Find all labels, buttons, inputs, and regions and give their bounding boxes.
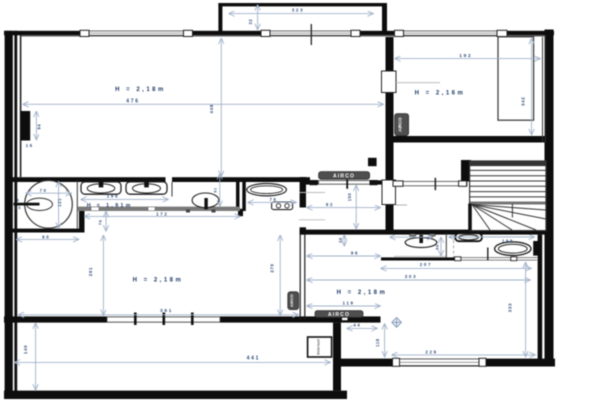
svg-text:16: 16	[26, 143, 34, 148]
svg-text:229: 229	[425, 349, 437, 354]
svg-text:H = 2,16m: H = 2,16m	[415, 91, 466, 97]
svg-text:44: 44	[353, 322, 361, 327]
svg-text:323: 323	[292, 8, 305, 13]
svg-text:56: 56	[435, 244, 440, 250]
svg-text:261: 261	[88, 267, 93, 276]
svg-text:94: 94	[37, 124, 42, 130]
svg-text:333: 333	[508, 303, 513, 312]
svg-text:70: 70	[40, 188, 48, 193]
svg-text:140: 140	[23, 345, 28, 354]
svg-text:448: 448	[209, 104, 214, 113]
svg-text:119: 119	[343, 300, 355, 305]
svg-text:270: 270	[269, 263, 274, 272]
svg-text:26: 26	[337, 237, 342, 243]
svg-text:172: 172	[156, 211, 168, 216]
svg-text:207: 207	[420, 262, 432, 267]
svg-text:91: 91	[214, 187, 218, 192]
svg-text:342: 342	[520, 97, 525, 106]
svg-text:441: 441	[247, 355, 260, 361]
svg-text:H = 2,18m: H = 2,18m	[133, 277, 184, 283]
svg-text:Meterkast: Meterkast	[317, 339, 321, 354]
svg-text:199: 199	[502, 239, 514, 244]
svg-text:121: 121	[57, 198, 62, 207]
svg-text:118: 118	[375, 338, 380, 347]
svg-text:361: 361	[160, 308, 173, 314]
svg-text:196: 196	[107, 194, 119, 199]
svg-text:76: 76	[269, 197, 277, 202]
svg-text:90: 90	[42, 234, 50, 239]
svg-text:AIRCO: AIRCO	[289, 294, 294, 307]
svg-text:192: 192	[459, 53, 472, 59]
svg-text:AIRCO: AIRCO	[328, 312, 350, 318]
svg-text:H = 2,18m: H = 2,18m	[337, 290, 388, 296]
svg-text:32: 32	[248, 19, 253, 25]
svg-text:AIRCO: AIRCO	[398, 117, 403, 132]
svg-text:476: 476	[126, 99, 139, 105]
svg-text:H = 1,91m: H = 1,91m	[87, 203, 133, 209]
svg-text:303: 303	[405, 274, 417, 279]
svg-text:18: 18	[15, 206, 22, 210]
svg-text:8: 8	[17, 199, 21, 203]
svg-text:H = 2,18m: H = 2,18m	[115, 87, 166, 93]
svg-text:92: 92	[326, 202, 334, 207]
svg-text:150: 150	[347, 192, 352, 201]
svg-text:76: 76	[98, 219, 103, 225]
svg-text:AIRCO: AIRCO	[333, 174, 355, 180]
svg-text:96: 96	[351, 250, 359, 255]
